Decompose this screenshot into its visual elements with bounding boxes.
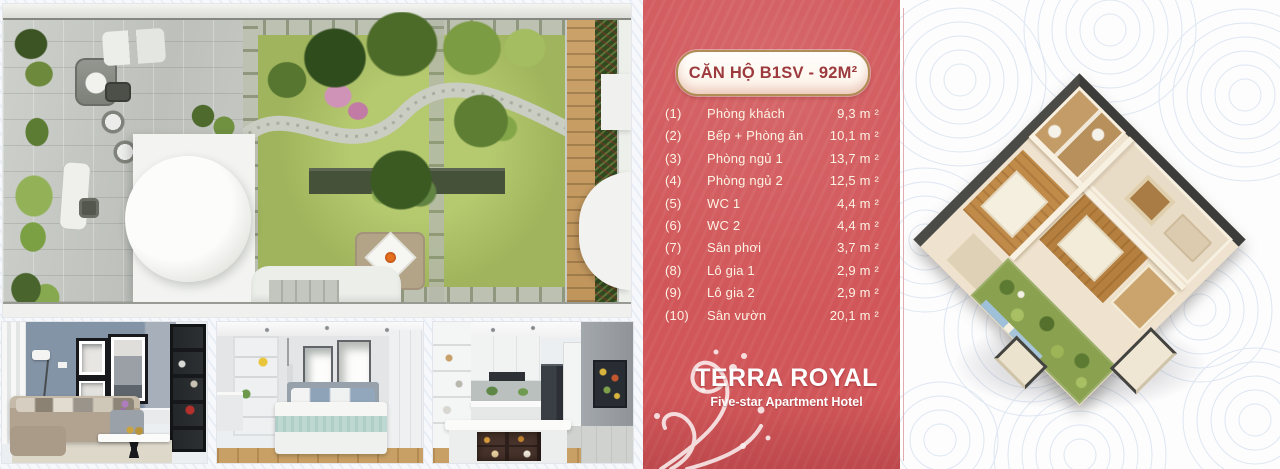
room-area: 2,9 m ² — [813, 263, 879, 278]
art-frame-tree — [303, 346, 333, 386]
fridge — [541, 364, 563, 426]
room-name: WC 2 — [707, 218, 813, 233]
coffee-table-top — [98, 434, 170, 442]
room-name: Phòng khách — [707, 106, 813, 121]
brochure-page: CĂN HỘ B1SV - 92M² (1) Phòng khách 9,3 m… — [0, 0, 1280, 469]
room-name: Lô gia 1 — [707, 263, 813, 278]
lounge-chairs — [102, 28, 166, 66]
room-number: (2) — [665, 128, 707, 143]
room-area: 4,4 m ² — [813, 196, 879, 211]
room-area: 10,1 m ² — [813, 128, 879, 143]
side-chair — [79, 198, 99, 218]
room-row: (5) WC 1 4,4 m ² — [665, 196, 879, 218]
room-row: (4) Phòng ngủ 2 12,5 m ² — [665, 173, 879, 195]
bedroom-photo — [217, 322, 423, 463]
floor-lamp-shade — [32, 350, 50, 360]
round-canopy — [125, 156, 251, 282]
bottom-wall — [3, 302, 631, 317]
room-number: (7) — [665, 240, 707, 255]
etagere-shelf — [170, 324, 206, 452]
room-row: (3) Phòng ngủ 1 13,7 m ² — [665, 151, 879, 173]
structure-topright — [601, 74, 631, 130]
sofa-plan — [1163, 213, 1213, 263]
wall-art — [593, 360, 627, 408]
room-area: 13,7 m ² — [813, 151, 879, 166]
room-name: Lô gia 2 — [707, 285, 813, 300]
room-number: (8) — [665, 263, 707, 278]
unit-title-badge: CĂN HỘ B1SV - 92M² — [676, 50, 870, 96]
wall-switch — [58, 362, 67, 368]
wall-frame-small-top — [76, 338, 108, 378]
room-name: Bếp + Phòng ăn — [707, 128, 813, 143]
fire-bowl — [385, 252, 396, 263]
room-row: (2) Bếp + Phòng ăn 10,1 m ² — [665, 128, 879, 150]
brand-block: TERRA ROYAL Five-star Apartment Hotel — [643, 364, 900, 409]
room-area: 4,4 m ² — [813, 218, 879, 233]
table-decor — [126, 425, 146, 435]
room-area: 12,5 m ² — [813, 173, 879, 188]
room-area: 3,7 m ² — [813, 240, 879, 255]
wine-niche-shelf — [477, 432, 541, 461]
hall-door — [563, 342, 583, 428]
room-number: (4) — [665, 173, 707, 188]
left-plants — [3, 14, 65, 314]
unit-title: CĂN HỘ B1SV - 92M² — [689, 64, 858, 83]
room-area: 9,3 m ² — [813, 106, 879, 121]
rooftop-garden-render — [3, 4, 631, 317]
room-name: Sân phơi — [707, 240, 813, 255]
dining-table — [1130, 180, 1170, 220]
desk — [217, 392, 243, 431]
room-area: 20,1 m ² — [813, 308, 879, 323]
range-hood — [489, 372, 525, 381]
room-row: (10) Sân vườn 20,1 m ² — [665, 308, 879, 330]
room-number: (3) — [665, 151, 707, 166]
steps — [269, 280, 339, 302]
room-number: (9) — [665, 285, 707, 300]
coffee-table-legs — [102, 440, 166, 458]
central-tree — [339, 126, 459, 240]
room-area-list: (1) Phòng khách 9,3 m ² (2) Bếp + Phòng … — [665, 106, 879, 330]
outdoor-table — [107, 84, 129, 100]
floorplan-column — [900, 0, 1280, 469]
garden-lawn — [243, 20, 565, 302]
brand-tagline: Five-star Apartment Hotel — [673, 395, 900, 409]
wall-frame-tall — [108, 334, 148, 404]
bed — [275, 402, 387, 454]
room-row: (6) WC 2 4,4 m ² — [665, 218, 879, 240]
pendant-lamp — [287, 338, 289, 366]
kitchen-photo — [433, 322, 633, 463]
room-row: (1) Phòng khách 9,3 m ² — [665, 106, 879, 128]
room-name: Phòng ngủ 2 — [707, 173, 813, 188]
gallery-column — [0, 0, 643, 469]
room-number: (10) — [665, 308, 707, 323]
room-name: WC 1 — [707, 196, 813, 211]
room-number: (5) — [665, 196, 707, 211]
room-number: (6) — [665, 218, 707, 233]
room-row: (7) Sân phơi 3,7 m ² — [665, 240, 879, 262]
chaise — [10, 426, 66, 456]
wardrobe — [389, 330, 423, 450]
room-name: Phòng ngủ 1 — [707, 151, 813, 166]
room-row: (9) Lô gia 2 2,9 m ² — [665, 285, 879, 307]
room-area: 2,9 m ² — [813, 285, 879, 300]
counter-plants — [481, 382, 541, 400]
room-row: (8) Lô gia 1 2,9 m ² — [665, 263, 879, 285]
chaise-lounge — [59, 161, 92, 231]
art-frame-deer — [337, 340, 371, 388]
island-top — [445, 420, 571, 430]
unit-info-panel: CĂN HỘ B1SV - 92M² (1) Phòng khách 9,3 m… — [643, 0, 900, 469]
brand-name: TERRA ROYAL — [673, 364, 900, 393]
room-name: Sân vườn — [707, 308, 813, 323]
living-room-photo — [2, 322, 207, 463]
room-number: (1) — [665, 106, 707, 121]
divider-rule — [903, 8, 904, 461]
